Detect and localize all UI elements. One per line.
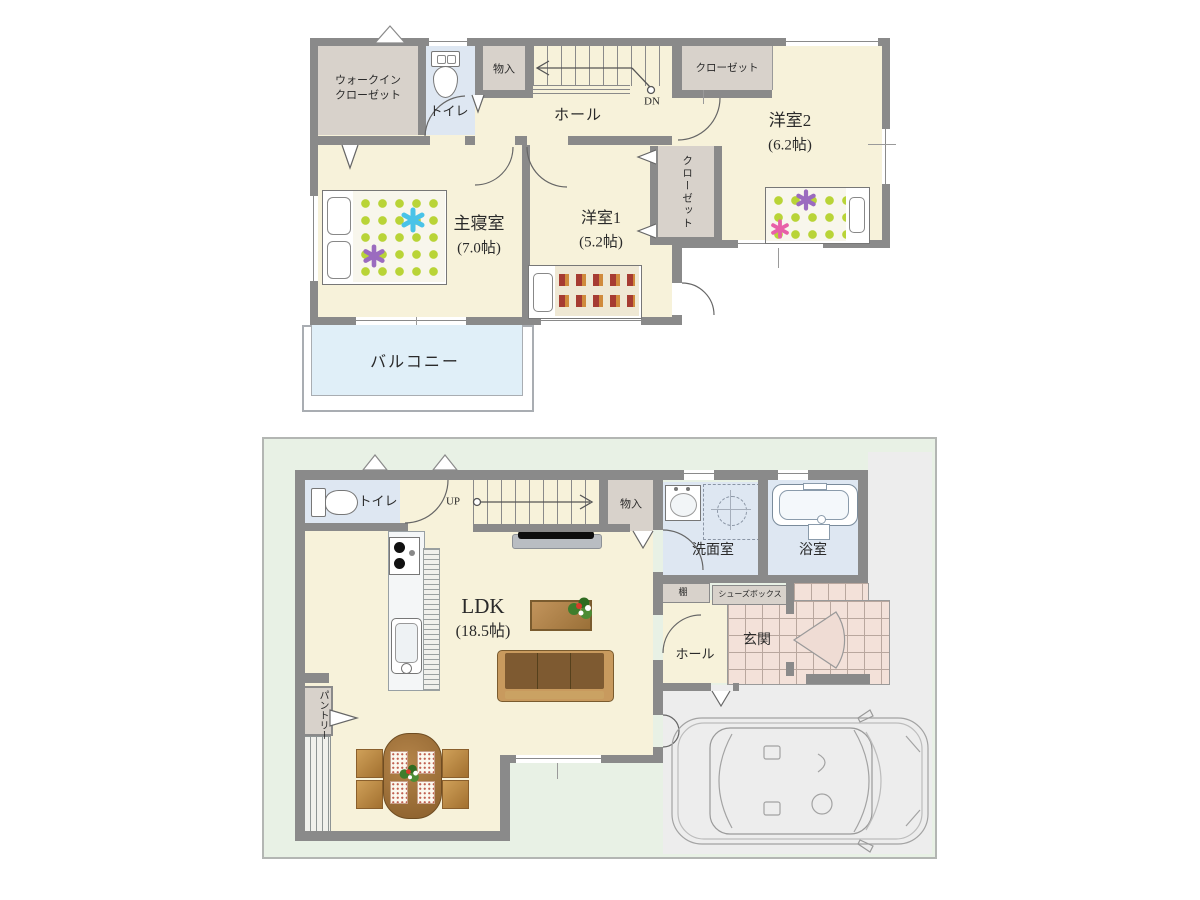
pantry-label: パントリー (306, 690, 328, 730)
toilet1f-label: トイレ (358, 495, 397, 510)
floor-plan: バルコニー (0, 0, 1200, 900)
flower-icon (398, 763, 422, 785)
hall1f-label: ホール (675, 648, 714, 663)
car-icon (672, 710, 928, 852)
flower-icon (566, 596, 596, 622)
washroom-label: 洗面室 (692, 543, 734, 559)
storage1f-label: 物入 (620, 499, 642, 512)
floor1-symbols (0, 0, 1200, 900)
up-label: UP (446, 496, 460, 509)
entrance-label: 玄関 (743, 633, 771, 649)
shelf-label: 棚 (678, 587, 687, 597)
ldk-label: LDK (461, 594, 504, 618)
bathroom-label: 浴室 (799, 543, 827, 559)
ldk-size-label: (18.5帖) (456, 623, 511, 641)
shoe-box-label: シューズボックス (718, 589, 781, 598)
